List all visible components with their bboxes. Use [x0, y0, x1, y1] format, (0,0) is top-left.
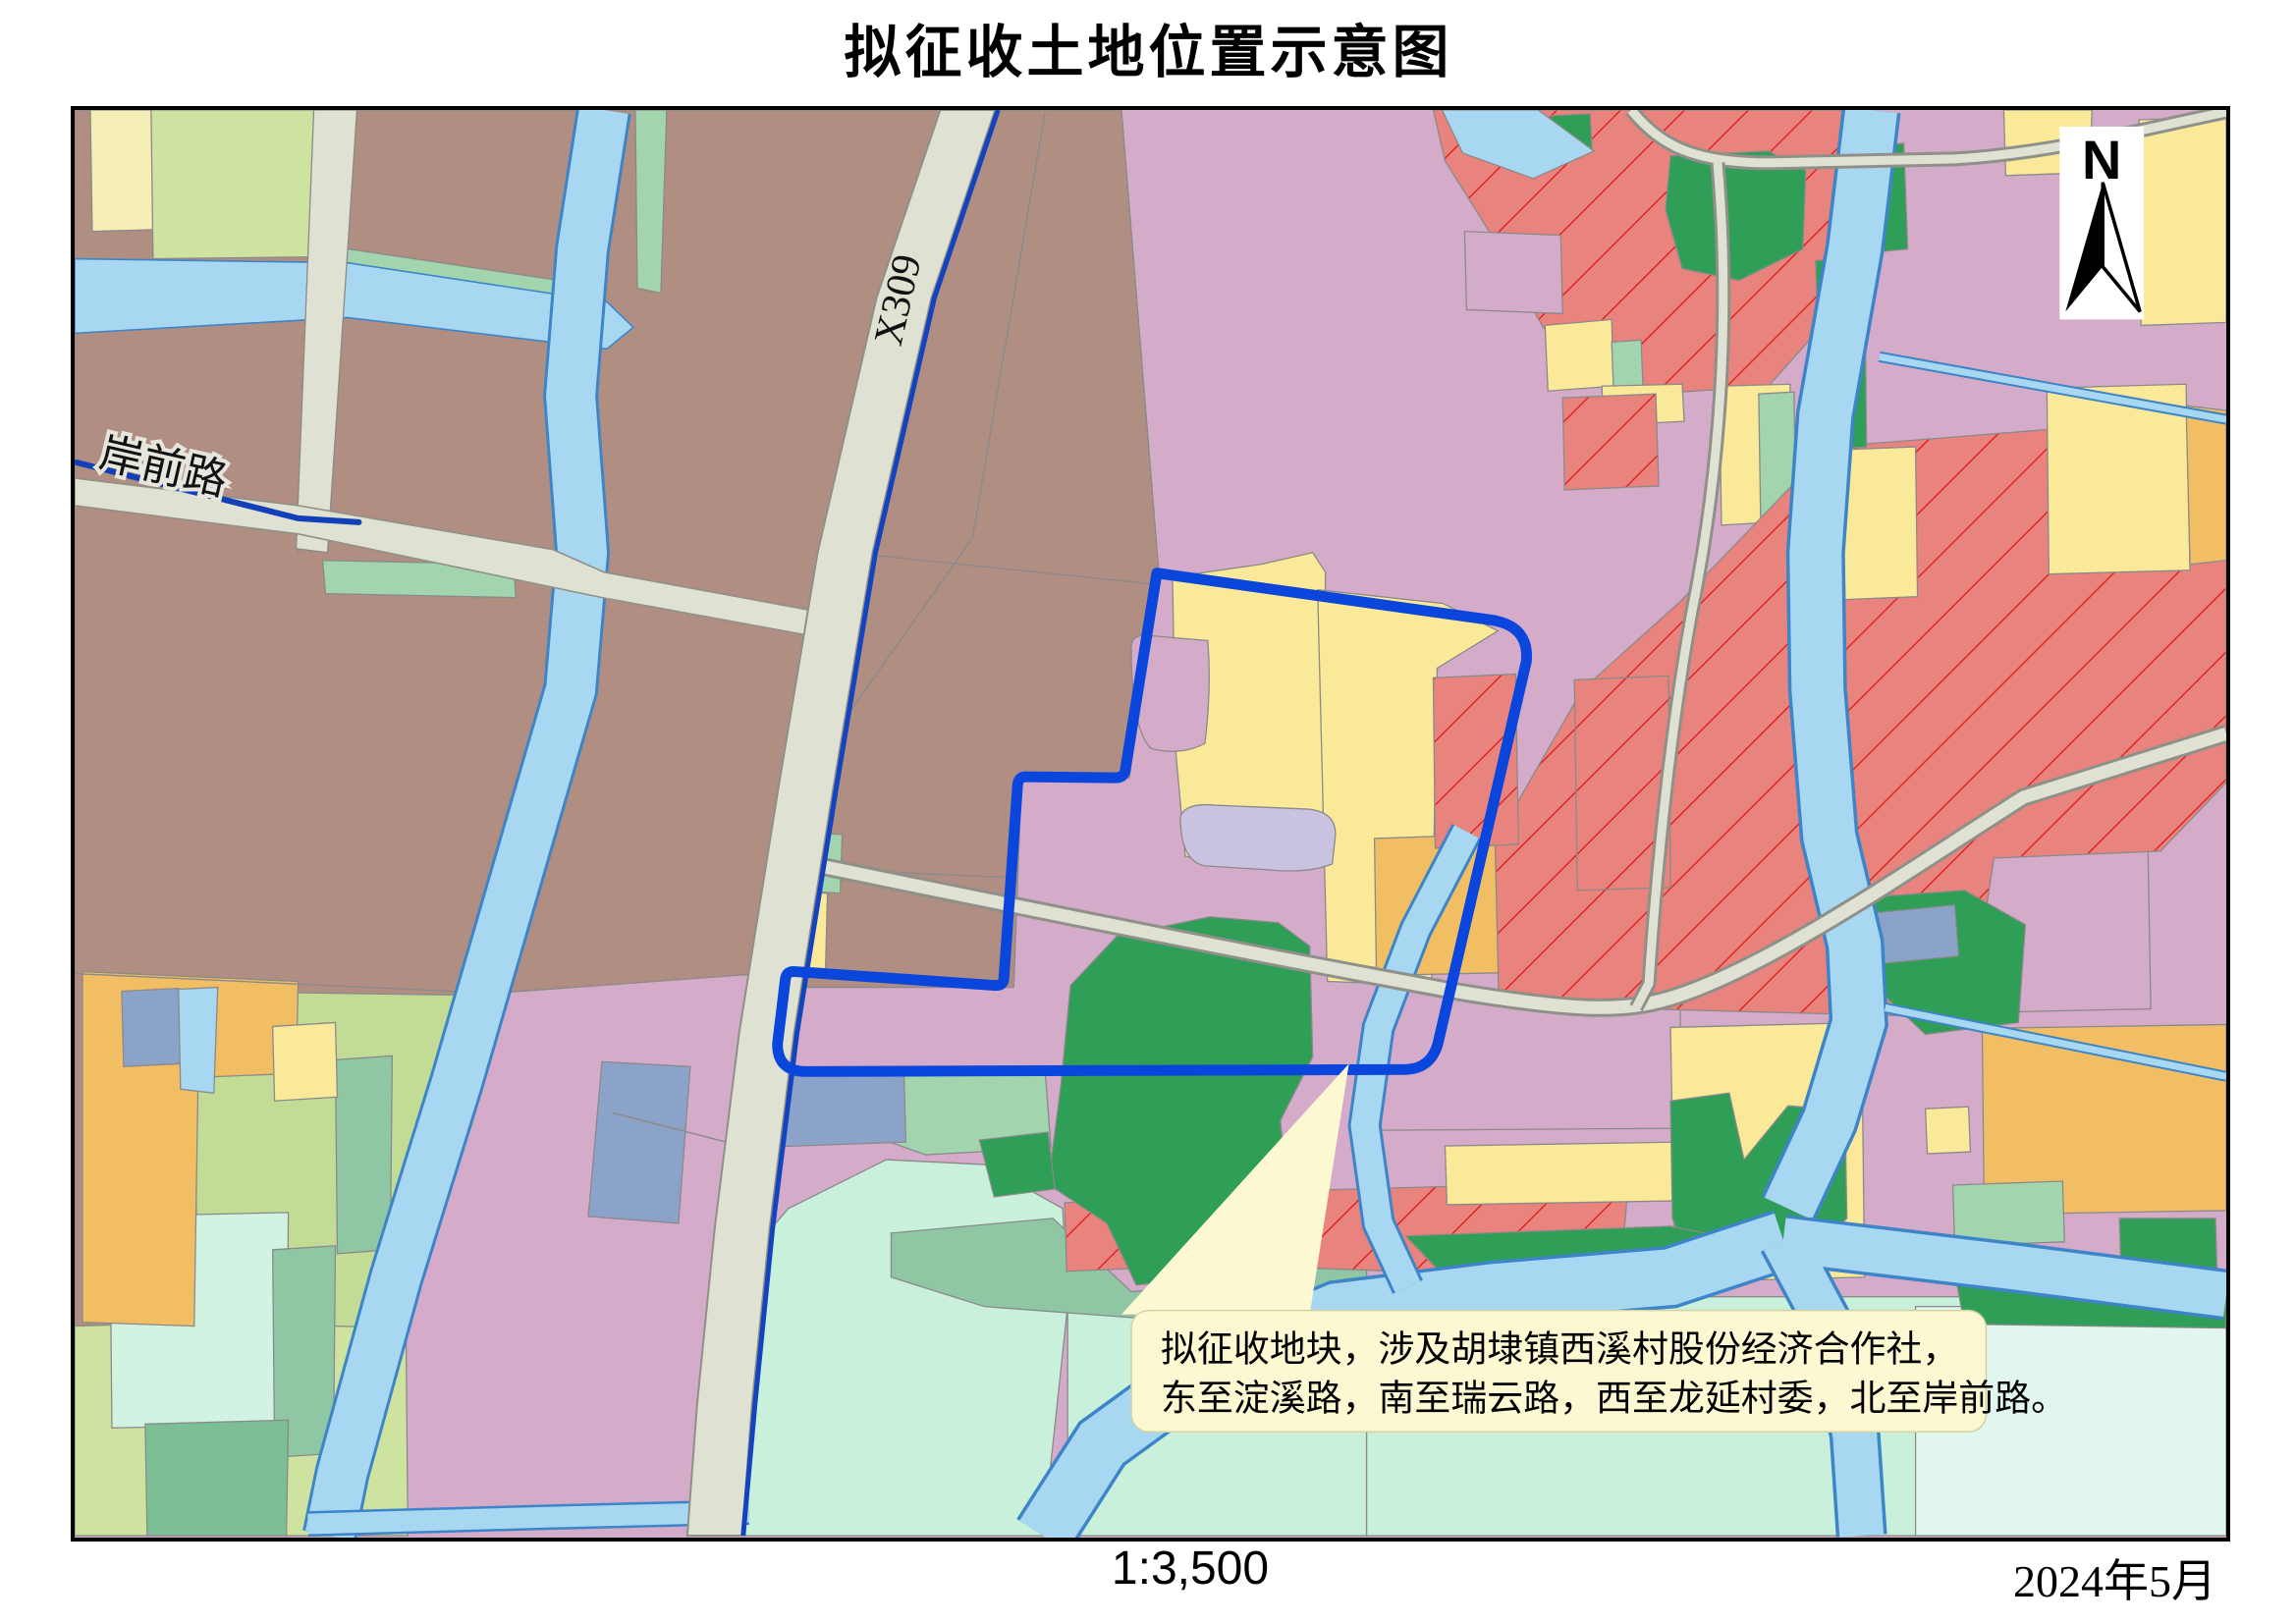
map-frame: 拟征收地块，涉及胡埭镇西溪村股份经济合作社， 东至淀溪路，南至瑞云路，西至龙延村… [71, 106, 2230, 1542]
date-text: 2024年5月 [2013, 1545, 2216, 1610]
scale-text: 1:3,500 [1043, 1542, 1338, 1596]
callout-line1: 拟征收地块，涉及胡埭镇西溪村股份经济合作社， [1161, 1329, 1958, 1370]
map-title: 拟征收土地位置示意图 [71, 6, 2226, 88]
page: 拟征收土地位置示意图 [0, 0, 2296, 1624]
callout-line2: 东至淀溪路，南至瑞云路，西至龙延村委，北至岸前路。 [1161, 1378, 2067, 1418]
north-arrow: N [2059, 127, 2144, 319]
map-canvas: 拟征收地块，涉及胡埭镇西溪村股份经济合作社， 东至淀溪路，南至瑞云路，西至龙延村… [75, 110, 2226, 1538]
north-label: N [2082, 129, 2121, 190]
